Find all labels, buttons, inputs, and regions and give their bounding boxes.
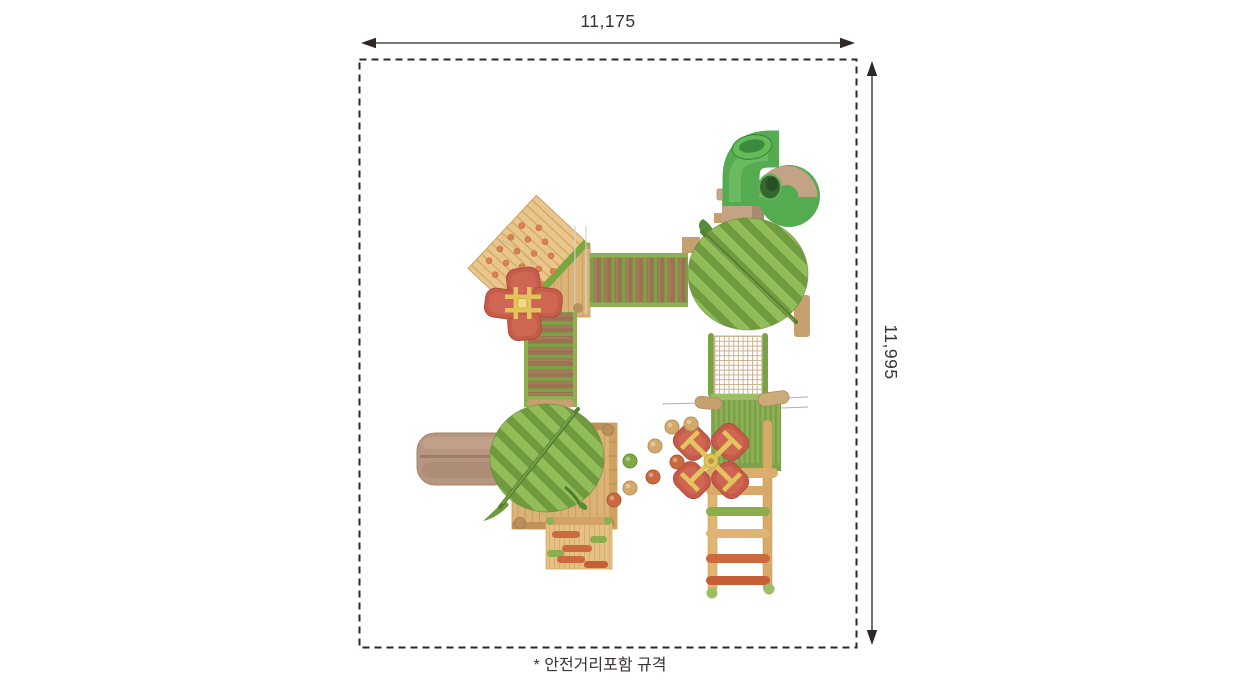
ladder-foot (707, 588, 718, 599)
safety-distance-footnote: * 안전거리포함 규격 (460, 656, 740, 676)
height-dimension-arrow (867, 61, 877, 645)
step-climber-bottom (546, 517, 612, 569)
horizontal-log-bridge (590, 253, 688, 307)
drawing-svg (0, 0, 1256, 700)
wood-peg (573, 303, 583, 313)
height-dimension-label: 11,995 (881, 317, 901, 387)
width-dimension-label: 11,175 (558, 11, 658, 31)
width-dimension-arrow (361, 38, 855, 48)
ladder-foot (764, 584, 775, 595)
leaf-canopy-right (688, 218, 808, 330)
playground-top-view (417, 132, 820, 599)
climbing-net (708, 333, 768, 397)
playground-dimension-drawing: 11,175 11,995 * 안전거리포함 규격 (0, 0, 1256, 700)
corkscrew-tube-slide (717, 132, 820, 227)
